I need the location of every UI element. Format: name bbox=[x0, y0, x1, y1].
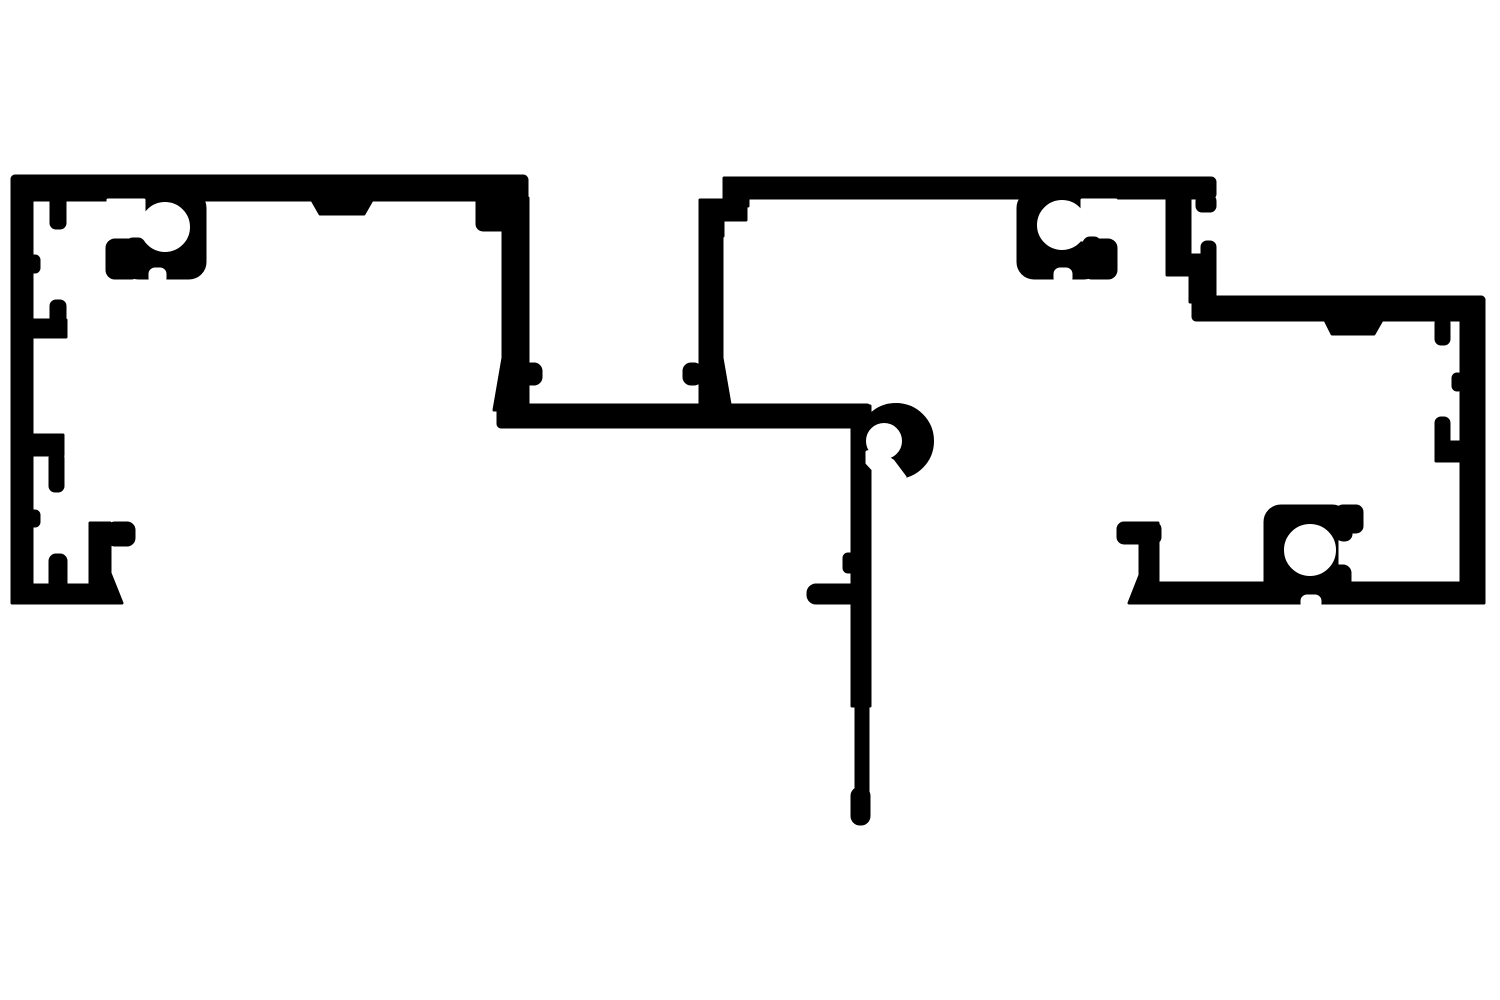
right-channel-web bbox=[1436, 442, 1462, 461]
left-foot-tab-stub bbox=[108, 523, 134, 545]
boss-right-hole bbox=[1285, 525, 1335, 575]
left-foot-finger-up bbox=[50, 555, 66, 595]
canvas-background bbox=[0, 0, 1500, 1000]
bottom-bar-right-notch bbox=[1302, 596, 1320, 608]
top-bar-mid-section bbox=[728, 178, 1215, 198]
boss-mid-slot bbox=[1082, 200, 1116, 240]
left-outer-wall bbox=[12, 176, 32, 603]
boss-right-nub bbox=[1337, 520, 1351, 540]
stem-lower bbox=[856, 700, 868, 796]
bottom-bar-middle bbox=[498, 405, 870, 427]
left-wall-bump-upper bbox=[30, 256, 39, 272]
stem-arm bbox=[808, 585, 866, 603]
right-wall-bump bbox=[1453, 374, 1462, 390]
boss-left-notch bbox=[150, 269, 165, 283]
mid-section-right-wall bbox=[1167, 178, 1190, 275]
mid-section-left-head-b bbox=[700, 218, 723, 236]
top-bar-left-tab bbox=[312, 200, 372, 214]
top-bar-left-section bbox=[12, 176, 527, 200]
mid-section-left-wall-tooth bbox=[684, 364, 701, 384]
step-block bbox=[1190, 255, 1215, 302]
mid-section-left-wall bbox=[700, 226, 722, 410]
boss-mid-nub bbox=[1084, 238, 1100, 254]
top-bar-end-lip bbox=[1197, 196, 1215, 211]
stem-side-bump bbox=[844, 554, 854, 572]
left-wall-hanging-tab bbox=[51, 196, 65, 228]
top-bar-right-tab bbox=[1325, 320, 1382, 334]
boss-right-lowblock bbox=[1330, 566, 1350, 603]
left-section-right-wall-tooth bbox=[524, 364, 541, 384]
left-wall-down-hook-finger bbox=[50, 453, 63, 491]
left-wall-up-hook-web bbox=[30, 320, 66, 337]
boss-left-hole bbox=[141, 203, 189, 251]
boss-mid-hole bbox=[1038, 201, 1086, 249]
stem-tip bbox=[852, 788, 869, 824]
boss-left-nub bbox=[127, 239, 144, 255]
boss-left-slot bbox=[108, 200, 144, 240]
left-wall-bump-lower bbox=[30, 511, 39, 526]
extrusion-profile-svg bbox=[0, 0, 1500, 1000]
right-hanging-finger bbox=[1436, 318, 1449, 344]
extrusion-profile-diagram bbox=[0, 0, 1500, 1000]
right-outer-wall bbox=[1461, 297, 1484, 603]
boss-mid-notch bbox=[1055, 269, 1071, 283]
